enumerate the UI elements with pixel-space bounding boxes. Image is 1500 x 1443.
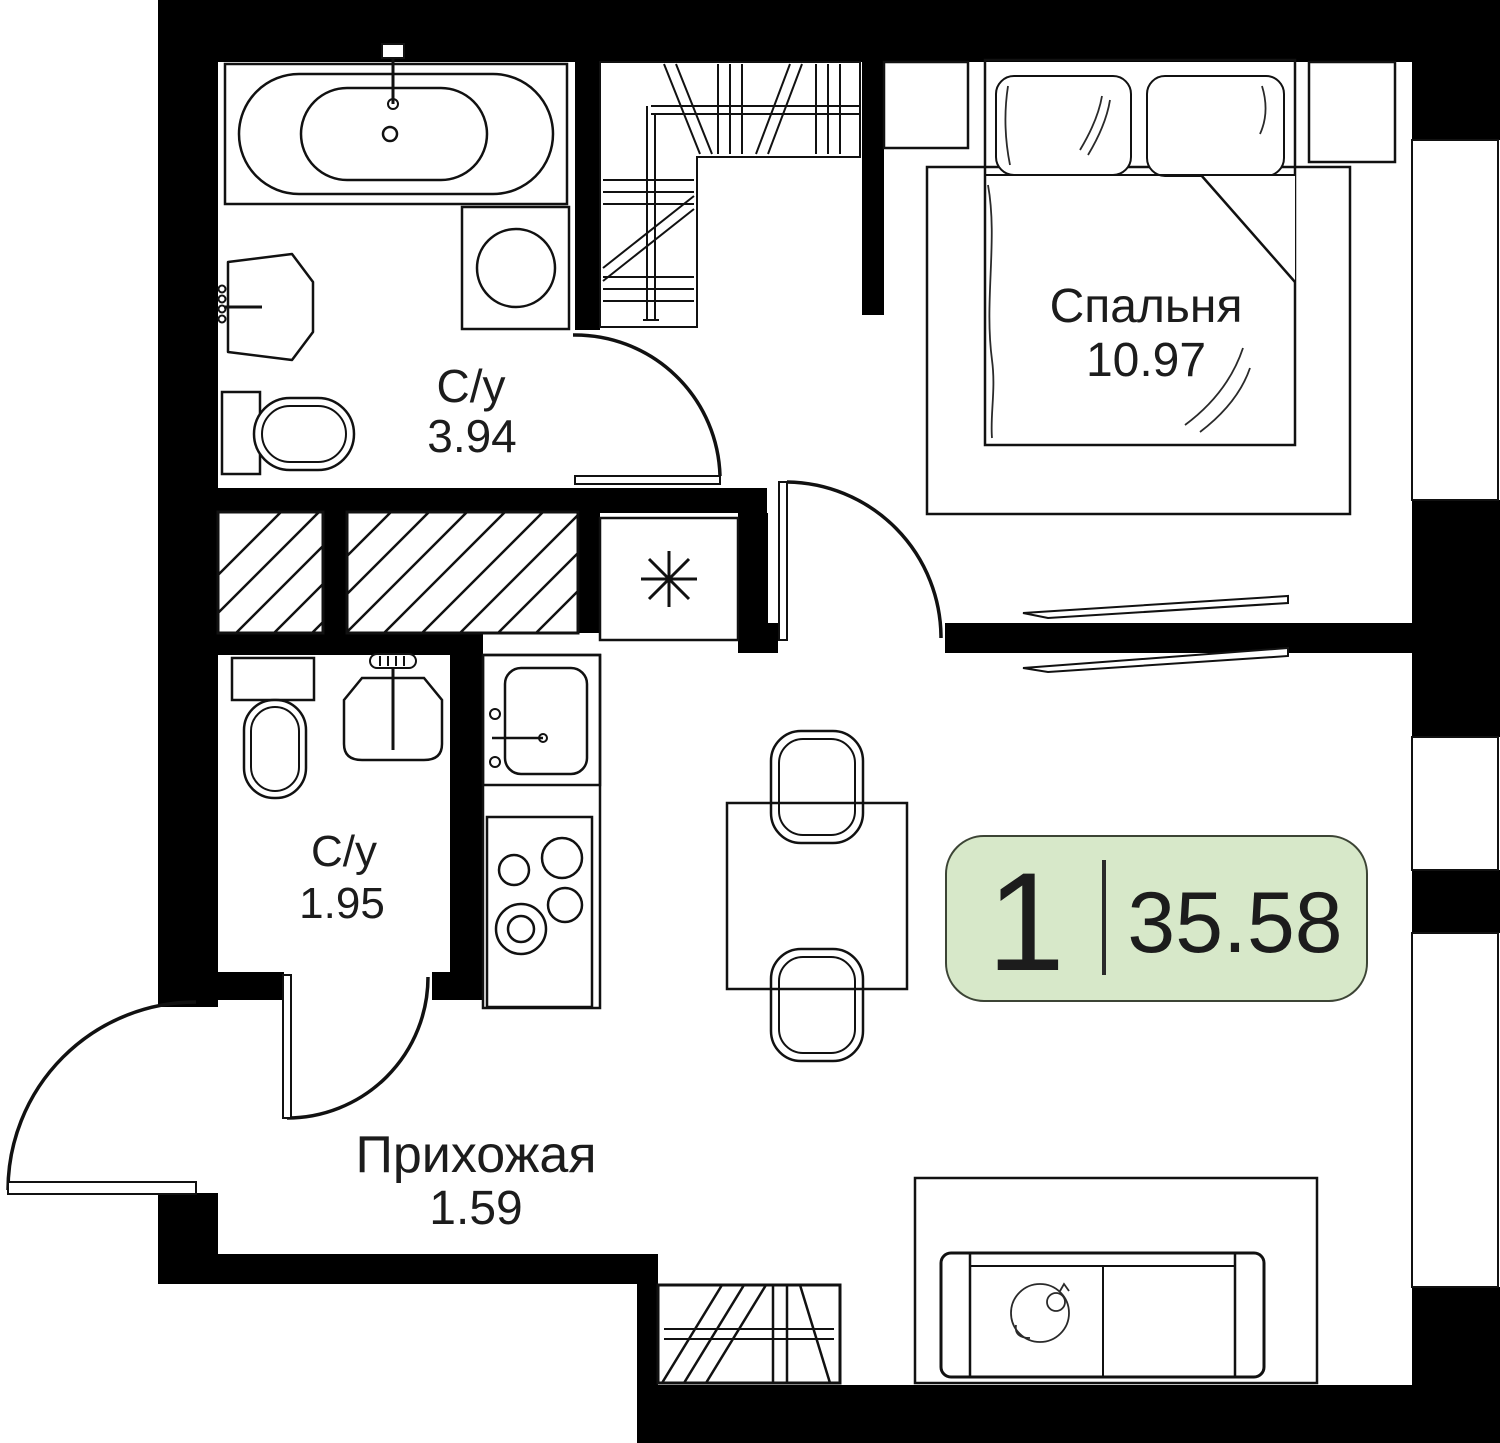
wall-wc-bottom-right bbox=[432, 972, 478, 1000]
wall-left-lower bbox=[158, 1193, 218, 1284]
window-living-upper bbox=[1412, 737, 1498, 870]
hallway-area: 1.59 bbox=[429, 1182, 522, 1235]
window-bedroom-right bbox=[1412, 140, 1498, 500]
badge-room-count: 1 bbox=[987, 843, 1065, 1000]
bathroom-large-area: 3.94 bbox=[427, 410, 517, 462]
blanket-fold bbox=[1201, 175, 1295, 282]
pillow bbox=[996, 76, 1131, 175]
bathroom-large-toilet bbox=[222, 392, 354, 474]
floor-plan: С/у 3.94 bbox=[0, 0, 1500, 1443]
wall-stub-foot bbox=[738, 623, 778, 653]
bottom-shaft bbox=[658, 1285, 840, 1383]
hallway-labels: Прихожая 1.59 bbox=[356, 1126, 597, 1235]
wall-bedroom-living-divider bbox=[945, 623, 1412, 653]
washing-machine bbox=[462, 207, 569, 329]
wall-right-a bbox=[1412, 500, 1500, 737]
sheet-crease bbox=[988, 185, 993, 438]
bedroom-area: 10.97 bbox=[1086, 334, 1206, 387]
kitchen-counter bbox=[483, 655, 600, 1008]
wall-wc-bottom-left bbox=[218, 972, 284, 1000]
wall-bedroom-stairs bbox=[862, 62, 884, 315]
kitchen bbox=[483, 655, 600, 1008]
wall-shaft-divider-2 bbox=[578, 512, 600, 633]
area-badge: 1 35.58 bbox=[946, 836, 1367, 1001]
cat-icon bbox=[1011, 1284, 1069, 1342]
bedroom-label: Спальня bbox=[1050, 280, 1243, 333]
bedroom: Спальня 10.97 bbox=[884, 60, 1395, 514]
staircase-treads bbox=[603, 64, 840, 301]
bathroom-small-area: 1.95 bbox=[299, 879, 385, 928]
door-bathroom-small bbox=[283, 975, 428, 1118]
wall-top bbox=[158, 0, 1412, 62]
wall-below-shafts bbox=[158, 633, 478, 655]
nightstand-left bbox=[884, 62, 968, 148]
wall-bottom bbox=[637, 1385, 1500, 1443]
bathroom-large: С/у 3.94 bbox=[219, 44, 570, 474]
pillow bbox=[1147, 76, 1284, 176]
utility-box bbox=[600, 518, 738, 640]
bathroom-large-label: С/у bbox=[437, 360, 506, 412]
bathtub bbox=[225, 44, 567, 204]
staircase bbox=[600, 62, 860, 327]
window-living-lower bbox=[1412, 933, 1498, 1287]
dining-chair-bottom bbox=[771, 949, 863, 1061]
sheet-crease bbox=[1200, 368, 1250, 432]
bathroom-large-sink bbox=[219, 254, 314, 360]
dining-chair-top bbox=[771, 731, 863, 843]
door-entrance bbox=[8, 1002, 196, 1194]
wall-above-shafts bbox=[158, 488, 767, 513]
bathroom-small-toilet bbox=[232, 658, 314, 798]
hallway-label: Прихожая bbox=[356, 1126, 597, 1184]
sofa-rug bbox=[915, 1178, 1317, 1383]
bottom-shaft-hatch bbox=[662, 1285, 834, 1383]
door-bathroom-large bbox=[573, 335, 720, 484]
wall-kitchen-bath bbox=[450, 633, 483, 1000]
bathroom-small-label: С/у bbox=[311, 827, 377, 876]
sofa bbox=[941, 1253, 1264, 1377]
wall-shaft-divider-1 bbox=[323, 512, 347, 633]
floor-plan-page: С/у 3.94 bbox=[0, 0, 1500, 1443]
stove bbox=[487, 817, 592, 1007]
badge-area-value: 35.58 bbox=[1127, 875, 1342, 971]
nightstand-right bbox=[1309, 62, 1395, 162]
wall-right-c bbox=[1412, 1287, 1500, 1443]
wall-top-right-corner bbox=[1412, 0, 1500, 140]
asterisk-icon bbox=[641, 551, 697, 607]
kitchen-sink bbox=[483, 655, 600, 785]
bathtub-faucet-icon bbox=[382, 44, 404, 109]
wall-right-b bbox=[1412, 870, 1500, 933]
door-bedroom bbox=[779, 482, 941, 640]
bathroom-small: С/у 1.95 bbox=[232, 654, 442, 928]
bathroom-small-sink bbox=[344, 654, 442, 760]
wall-hall-bottom bbox=[218, 1254, 658, 1284]
wall-bathroom-right bbox=[575, 62, 600, 330]
